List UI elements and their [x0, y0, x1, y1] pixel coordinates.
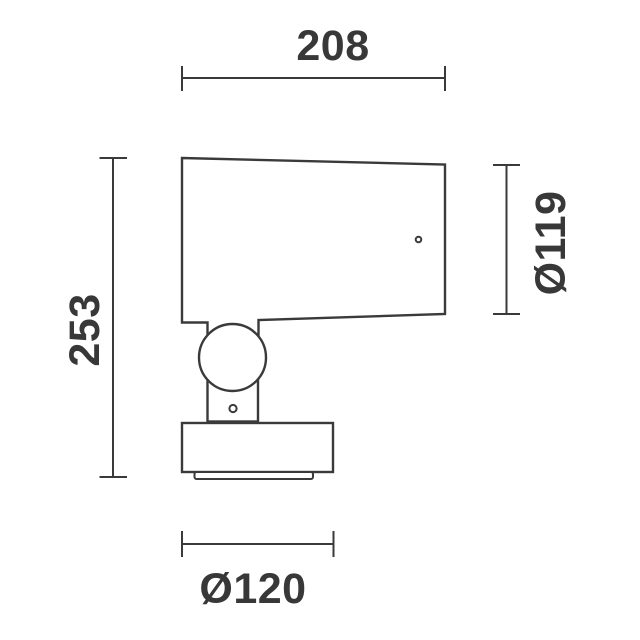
ball-joint-outline: [199, 324, 266, 391]
stem-screw-hole: [229, 405, 236, 412]
housing-outline: [182, 158, 445, 341]
luminaire-dimension-drawing: 208 253 Ø119 Ø120: [0, 0, 640, 640]
dim-label-width: 208: [296, 22, 369, 70]
base-outline: [182, 423, 333, 472]
dimension-drawing-page: 208 253 Ø119 Ø120: [0, 0, 640, 640]
dim-label-base-diameter: Ø120: [199, 565, 306, 613]
dim-label-height: 253: [61, 293, 109, 366]
dim-label-head-diameter: Ø119: [527, 191, 575, 296]
dim-line-right: [493, 165, 520, 314]
base-plate-outline: [195, 472, 314, 479]
housing-detail-dot: [416, 237, 422, 243]
dim-line-bottom: [182, 531, 334, 557]
fixture-outline-group: [182, 158, 445, 479]
